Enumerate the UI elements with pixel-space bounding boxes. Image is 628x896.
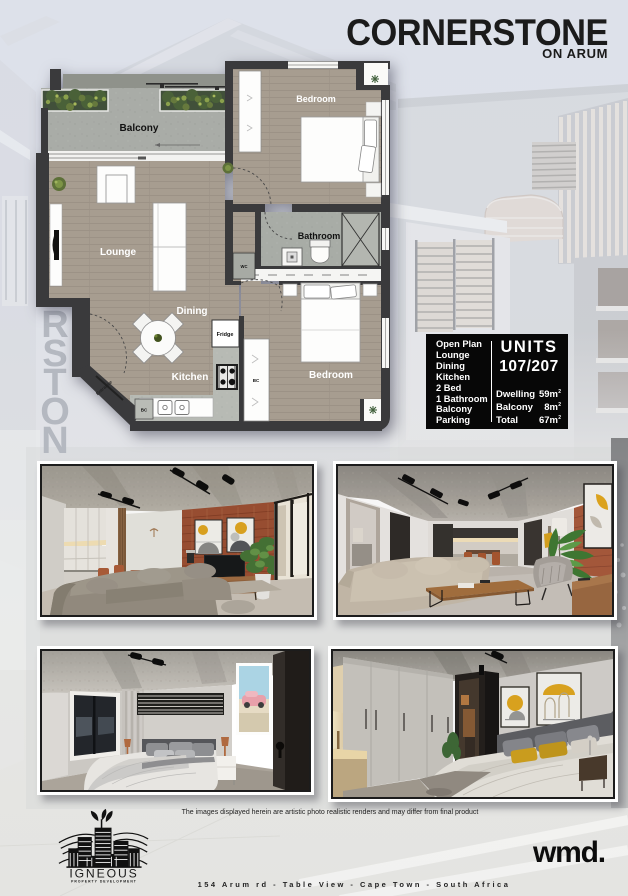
svg-text:IGNEOUS: IGNEOUS [69, 866, 138, 880]
svg-text:WC: WC [241, 264, 248, 269]
svg-text:BC: BC [141, 408, 148, 413]
svg-text:Fridge: Fridge [217, 332, 234, 338]
svg-text:Lounge: Lounge [100, 247, 137, 258]
svg-text:Kitchen: Kitchen [172, 372, 209, 383]
svg-text:Balcony: Balcony [120, 123, 159, 134]
svg-text:Dining: Dining [176, 306, 207, 317]
svg-text:BC: BC [253, 378, 260, 383]
svg-text:Bedroom: Bedroom [296, 94, 336, 104]
svg-text:Bedroom: Bedroom [309, 370, 353, 381]
svg-text:Bathroom: Bathroom [298, 231, 341, 241]
